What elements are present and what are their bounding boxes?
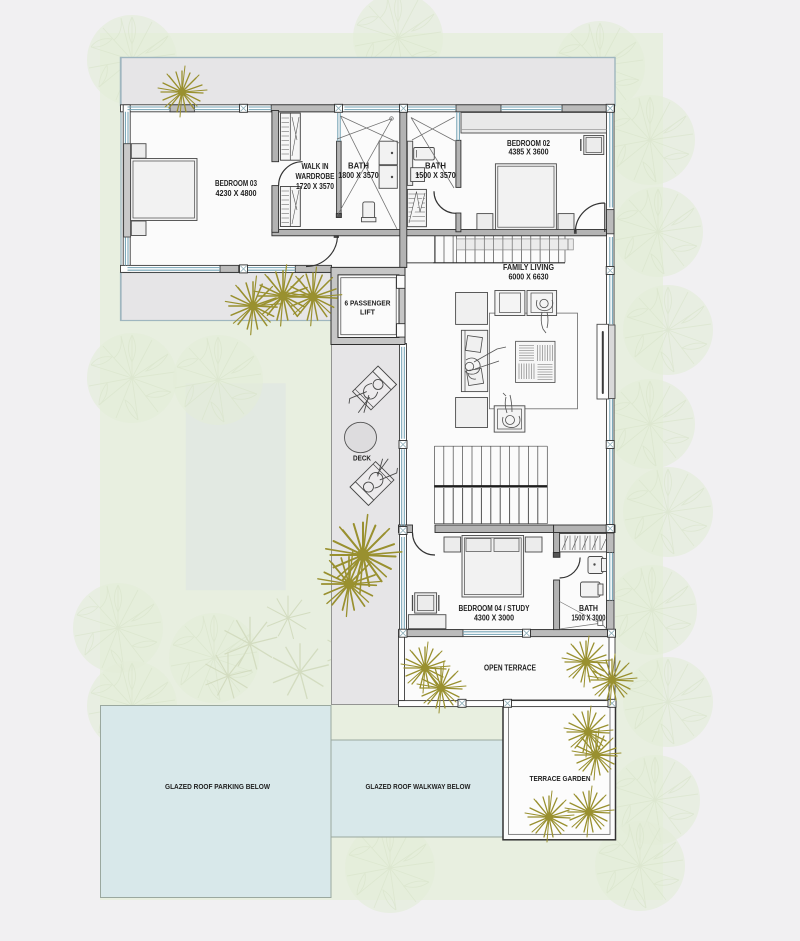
svg-text:1720 X 3570: 1720 X 3570: [296, 182, 334, 191]
svg-text:6 PASSENGER: 6 PASSENGER: [345, 299, 392, 308]
svg-text:TERRACE GARDEN: TERRACE GARDEN: [530, 774, 591, 783]
svg-text:WARDROBE: WARDROBE: [296, 172, 336, 181]
svg-text:GLAZED ROOF PARKING BELOW: GLAZED ROOF PARKING BELOW: [165, 782, 271, 791]
svg-text:FAMILY LIVING: FAMILY LIVING: [503, 263, 554, 272]
svg-text:BEDROOM 03: BEDROOM 03: [215, 179, 257, 188]
svg-text:DECK: DECK: [353, 454, 371, 463]
svg-text:4230 X 4800: 4230 X 4800: [216, 189, 257, 198]
svg-text:OPEN TERRACE: OPEN TERRACE: [484, 664, 537, 673]
svg-text:BATH: BATH: [348, 162, 369, 171]
svg-text:6000 X 6630: 6000 X 6630: [509, 273, 549, 282]
svg-text:BATH: BATH: [579, 604, 598, 613]
svg-text:1800 X 3570: 1800 X 3570: [338, 171, 379, 180]
svg-text:BEDROOM 04 / STUDY: BEDROOM 04 / STUDY: [459, 604, 531, 613]
svg-text:BATH: BATH: [425, 162, 446, 171]
svg-text:LIFT: LIFT: [360, 308, 375, 317]
svg-text:GLAZED ROOF WALKWAY BELOW: GLAZED ROOF WALKWAY BELOW: [366, 782, 472, 791]
svg-text:4385 X 3600: 4385 X 3600: [509, 148, 549, 157]
svg-text:1500 X 3000: 1500 X 3000: [572, 614, 606, 623]
svg-text:WALK IN: WALK IN: [302, 162, 329, 171]
svg-text:1500 X 3570: 1500 X 3570: [415, 171, 456, 180]
svg-text:4300 X 3000: 4300 X 3000: [474, 614, 514, 623]
